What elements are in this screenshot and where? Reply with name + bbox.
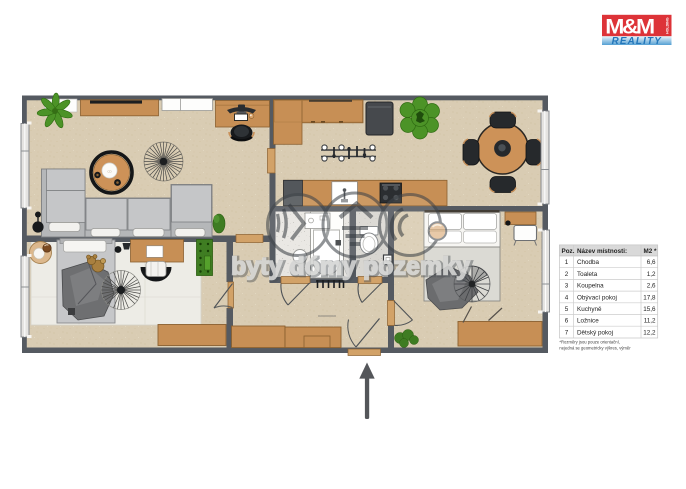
svg-text:*Rozměry jsou pouze orientační: *Rozměry jsou pouze orientační, (559, 340, 620, 345)
svg-text:nejedná se geometricky výkres,: nejedná se geometricky výkres, výměr (559, 346, 631, 351)
svg-text:4: 4 (565, 294, 569, 301)
svg-text:7: 7 (565, 329, 569, 336)
svg-text:1: 1 (565, 259, 569, 266)
svg-text:Toaleta: Toaleta (577, 271, 598, 278)
svg-text:15,6: 15,6 (643, 306, 656, 313)
svg-text:HOLDING: HOLDING (665, 17, 669, 34)
svg-text:2,6: 2,6 (647, 283, 656, 290)
svg-text:Koupelna: Koupelna (577, 283, 604, 290)
svg-text:6,6: 6,6 (647, 259, 656, 266)
svg-text:Obývací pokoj: Obývací pokoj (577, 294, 617, 301)
svg-text:2: 2 (565, 271, 569, 278)
svg-text:byty dómy pozemky: byty dómy pozemky (231, 253, 470, 281)
svg-text:M&M: M&M (605, 14, 653, 38)
svg-text:Ložnice: Ložnice (577, 318, 599, 325)
svg-text:17,8: 17,8 (643, 294, 656, 301)
svg-text:Dětský pokoj: Dětský pokoj (577, 329, 613, 336)
svg-text:3: 3 (565, 283, 569, 290)
svg-text:11,2: 11,2 (644, 318, 656, 325)
svg-text:6: 6 (565, 318, 569, 325)
svg-text:Chodba: Chodba (577, 259, 600, 266)
svg-text:Poz.: Poz. (562, 248, 575, 255)
svg-text:5: 5 (565, 306, 569, 313)
svg-text:REALITY: REALITY (612, 36, 663, 47)
svg-text:1,2: 1,2 (647, 271, 656, 278)
svg-text:Název místnosti:: Název místnosti: (577, 248, 627, 255)
svg-text:12,2: 12,2 (643, 329, 656, 336)
svg-text:M2 *: M2 * (644, 248, 657, 255)
svg-text:Kuchyně: Kuchyně (577, 306, 602, 313)
